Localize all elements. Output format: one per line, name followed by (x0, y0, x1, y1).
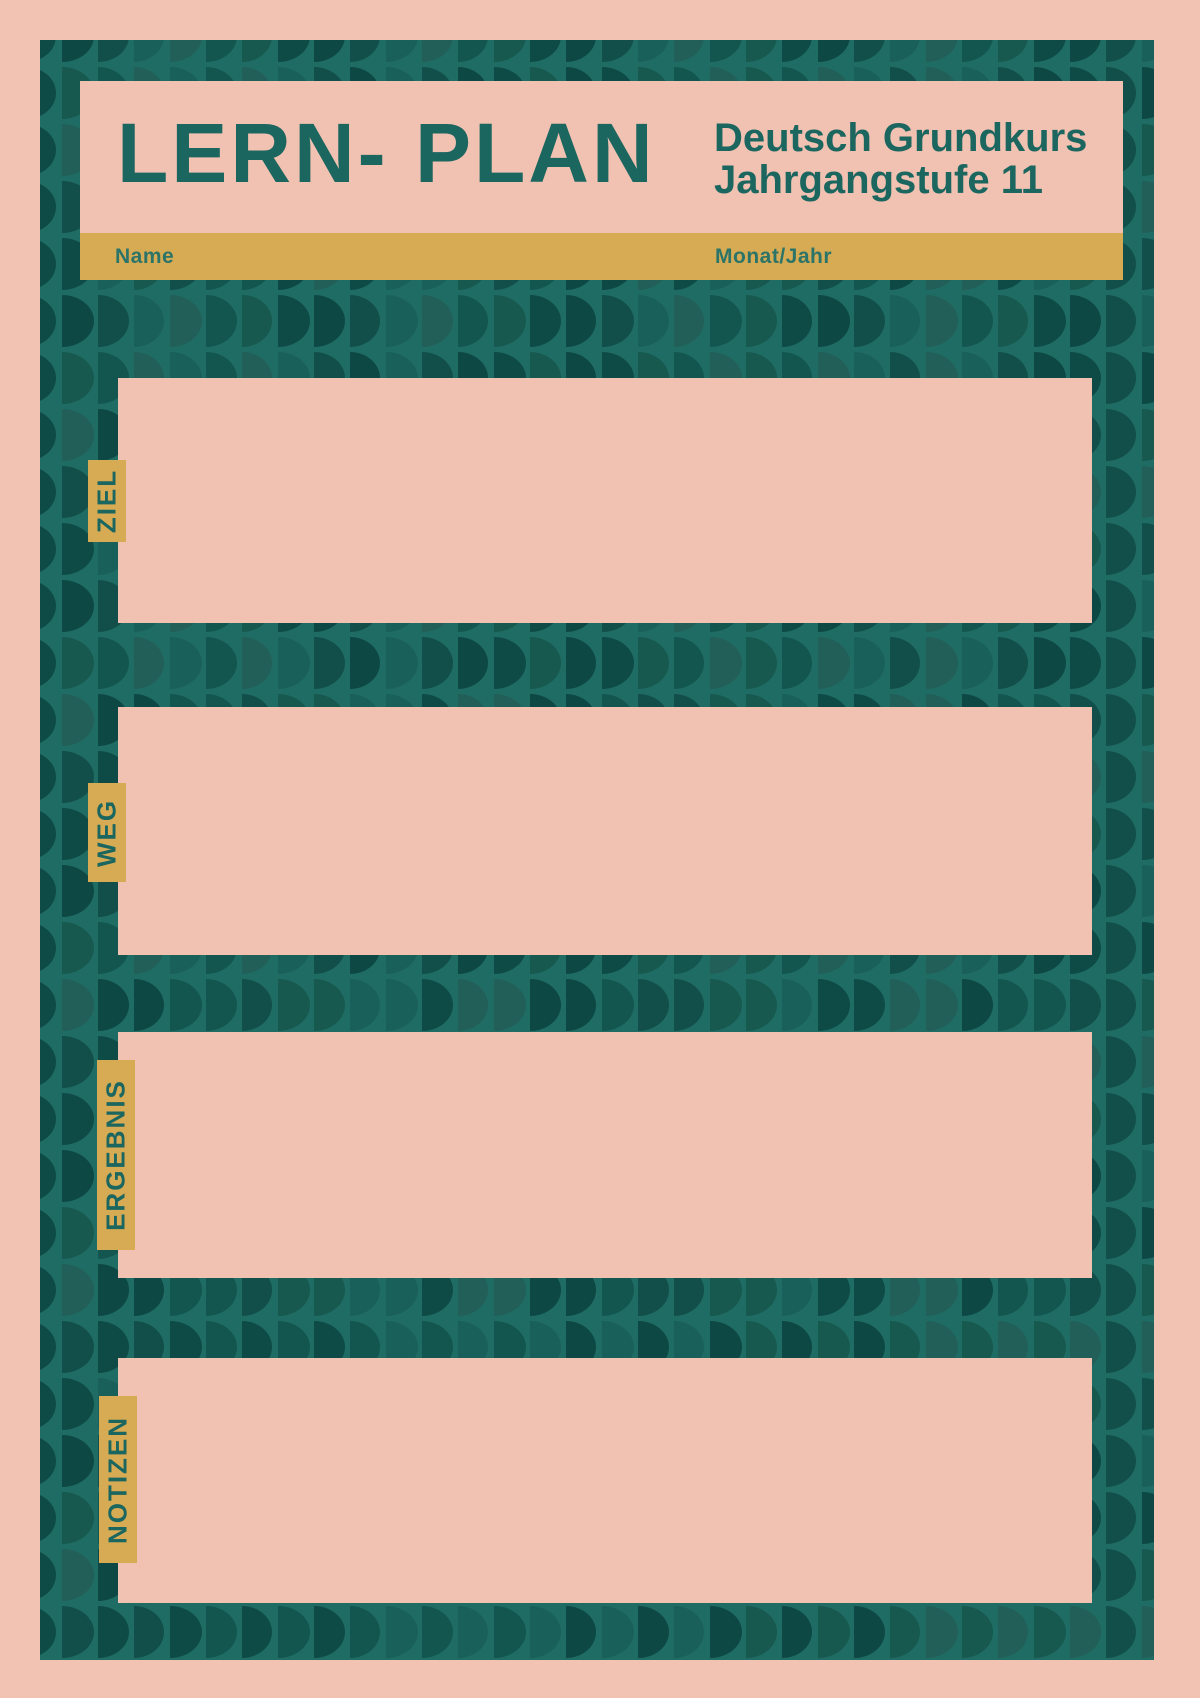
section-tag-label-notizen: NOTIZEN (103, 1415, 134, 1543)
course-name: Deutsch Grundkurs (714, 116, 1087, 160)
meta-bar[interactable]: Name Monat/Jahr (80, 233, 1123, 280)
pattern-panel: LERN- PLAN Deutsch Grundkurs Jahrgangstu… (40, 40, 1154, 1660)
section-tag-weg: WEG (88, 783, 126, 882)
course-subtitle: Deutsch Grundkurs Jahrgangstufe 11 (714, 117, 1087, 201)
section-input-area-notizen[interactable] (118, 1358, 1092, 1603)
section-tag-label-ergebnis: ERGEBNIS (101, 1079, 132, 1231)
section-tag-ergebnis: ERGEBNIS (97, 1060, 135, 1250)
lern-plan-page: LERN- PLAN Deutsch Grundkurs Jahrgangstu… (0, 0, 1200, 1698)
section-input-area-weg[interactable] (118, 707, 1092, 955)
month-year-field-label: Monat/Jahr (715, 233, 832, 280)
page-title: LERN- PLAN (117, 111, 656, 195)
section-input-area-ziel[interactable] (118, 378, 1092, 623)
header-box: LERN- PLAN Deutsch Grundkurs Jahrgangstu… (80, 81, 1123, 233)
section-tag-label-ziel: ZIEL (92, 469, 123, 533)
name-field-label: Name (115, 233, 174, 280)
section-tag-notizen: NOTIZEN (99, 1396, 137, 1563)
section-tag-ziel: ZIEL (88, 460, 126, 542)
grade-level: Jahrgangstufe 11 (714, 158, 1043, 202)
section-input-area-ergebnis[interactable] (118, 1032, 1092, 1278)
section-tag-label-weg: WEG (92, 798, 123, 866)
